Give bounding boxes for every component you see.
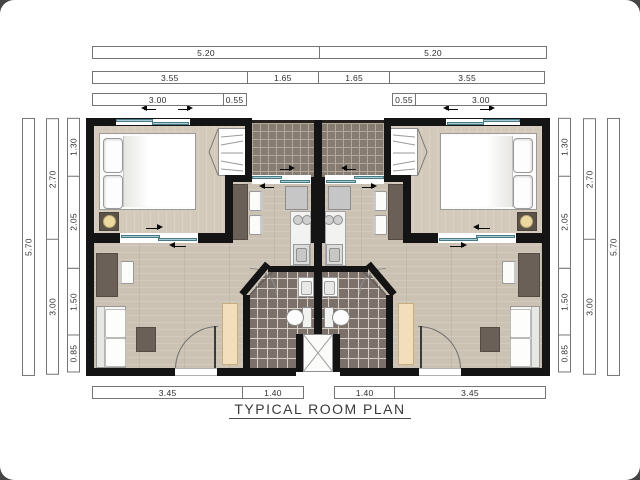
kitchen-counter	[325, 211, 346, 266]
window-pane	[476, 235, 515, 238]
slide-arrow-icon	[446, 109, 458, 110]
dim-segment: 3.00	[46, 239, 59, 375]
wall-bathroom-top	[318, 266, 368, 272]
desk	[518, 253, 540, 297]
wall-exterior-bottom	[86, 368, 175, 376]
dim-segment: 2.05	[67, 176, 80, 269]
bathroom-vanity	[298, 277, 314, 297]
dining-chair	[373, 215, 387, 235]
dim-segment: 3.00	[583, 239, 596, 375]
dim-segment: 3.00	[92, 93, 224, 106]
window-pane	[252, 176, 282, 179]
dining-chair	[249, 215, 263, 235]
dim-segment: 1.30	[67, 118, 80, 177]
dim-segment: 1.40	[242, 386, 303, 399]
bedroom-window	[446, 119, 520, 125]
window-pane	[447, 122, 484, 125]
refrigerator	[328, 186, 351, 210]
dim-segment: 3.45	[92, 386, 243, 399]
dim-row-mid-width: 3.551.651.653.55	[92, 71, 545, 84]
sink-basin	[296, 248, 307, 262]
entry-door-threshold	[419, 368, 461, 376]
kitchen-sink	[326, 244, 343, 265]
sofa	[96, 306, 126, 368]
dim-row-inner-width-right: 0.553.00	[392, 93, 547, 106]
stove-burner-icon	[324, 215, 334, 225]
slide-arrow-icon	[178, 109, 190, 110]
dim-row-inner-width-left: 3.000.55	[92, 93, 247, 106]
wardrobe	[208, 128, 246, 176]
dim-segment: 1.50	[558, 268, 571, 336]
slide-arrow-icon	[480, 109, 492, 110]
toilet-bowl	[332, 309, 350, 326]
dim-row-overall-width: 5.205.20	[92, 46, 547, 59]
dim-segment: 0.55	[223, 93, 247, 106]
wall-exterior-left	[86, 118, 94, 376]
dim-segment: 5.20	[319, 46, 547, 59]
shaft-wall	[333, 334, 340, 372]
pillow	[513, 175, 533, 209]
dim-col-right-mid: 2.703.00	[583, 118, 596, 375]
desk-chair	[119, 261, 134, 284]
dim-col-left-inner: 1.302.051.500.85	[67, 118, 80, 373]
balcony-railing	[252, 120, 318, 123]
dim-segment: 2.70	[46, 118, 59, 240]
entry-door-threshold	[175, 368, 217, 376]
dim-segment: 3.00	[415, 93, 547, 106]
wardrobe	[390, 128, 428, 176]
wall-party-kitchen	[311, 177, 325, 243]
desk-chair	[502, 261, 517, 284]
dining-chair	[249, 191, 263, 211]
wall-exterior-bottom	[340, 368, 419, 376]
kitchen-sink	[293, 244, 310, 265]
dim-segment: 3.45	[394, 386, 545, 399]
wall-stub	[225, 175, 233, 243]
desk	[96, 253, 118, 297]
coffee-table	[480, 327, 500, 352]
entry-door-leaf	[214, 326, 216, 368]
window-pane	[121, 235, 160, 238]
window-pane	[116, 119, 153, 122]
dim-segment: 3.55	[389, 71, 545, 84]
pillow	[103, 175, 123, 209]
duvet	[441, 136, 513, 207]
unit-right	[318, 118, 550, 376]
dim-segment: 1.50	[67, 268, 80, 336]
wall-bathroom-left	[386, 295, 393, 368]
slide-arrow-icon	[144, 109, 156, 110]
dim-segment: 5.70	[607, 118, 620, 376]
coffee-table	[136, 327, 156, 352]
dim-segment: 5.70	[22, 118, 35, 376]
dim-segment: 0.55	[392, 93, 416, 106]
slide-arrow-icon	[362, 187, 374, 188]
refrigerator	[285, 186, 308, 210]
bed	[440, 133, 537, 210]
entry-door-leaf	[420, 326, 422, 368]
dim-col-right-outer: 5.70	[607, 118, 620, 376]
slide-arrow-icon	[146, 228, 160, 229]
wall-party-top	[314, 120, 322, 177]
bedroom-sliding-partition	[120, 233, 198, 243]
kitchen-counter	[290, 211, 311, 266]
wall-exterior-bottom	[217, 368, 296, 376]
window-pane	[354, 176, 384, 179]
dim-segment: 1.65	[318, 71, 390, 84]
sofa-cushion	[105, 338, 126, 367]
sofa-cushion	[510, 338, 531, 367]
shoe-cabinet	[222, 303, 238, 365]
wall-bathroom-left	[243, 295, 250, 368]
dim-segment: 2.05	[558, 176, 571, 269]
dining-table	[388, 184, 404, 240]
pillow	[103, 138, 123, 173]
bedroom-window	[116, 119, 190, 125]
bedside-lamp-icon	[103, 215, 116, 228]
stove-burner-icon	[333, 215, 343, 225]
wall-stub	[403, 175, 411, 243]
bed	[99, 133, 196, 210]
window-pane	[280, 180, 310, 183]
wall-party-bathroom	[314, 243, 322, 334]
dining-table	[232, 184, 248, 240]
bathroom-vanity	[322, 277, 338, 297]
window-pane	[158, 238, 197, 241]
shoe-cabinet	[398, 303, 414, 365]
floor-plan-sheet: 5.205.20 3.551.651.653.55 3.000.55 0.553…	[0, 0, 640, 480]
page-title: TYPICAL ROOM PLAN	[229, 401, 410, 419]
dim-segment: 0.85	[558, 334, 571, 372]
floor-plan	[86, 118, 550, 376]
dim-row-bottom-right: 1.403.45	[334, 386, 546, 399]
window-pane	[152, 122, 189, 125]
slide-arrow-icon	[280, 169, 292, 170]
unit-left	[86, 118, 318, 376]
vanity-basin	[324, 281, 335, 295]
slide-arrow-icon	[344, 169, 356, 170]
dim-segment: 2.70	[583, 118, 596, 240]
drawing-title: TYPICAL ROOM PLAN	[0, 401, 640, 419]
dining-chair	[373, 191, 387, 211]
toilet-bowl	[286, 309, 304, 326]
dim-col-left-mid: 2.703.00	[46, 118, 59, 375]
sofa	[510, 306, 540, 368]
service-shaft	[303, 334, 333, 372]
window-pane	[326, 180, 356, 183]
sofa-back	[531, 307, 539, 367]
wall-exterior-left	[542, 118, 550, 376]
wall-balcony	[384, 118, 391, 182]
window-pane	[439, 238, 478, 241]
slide-arrow-icon	[172, 246, 186, 247]
pillow	[513, 138, 533, 173]
slide-arrow-icon	[450, 246, 464, 247]
window-pane	[483, 119, 520, 122]
vanity-basin	[301, 281, 312, 295]
sink-basin	[329, 248, 340, 262]
sofa-back	[97, 307, 105, 367]
shaft-wall	[296, 334, 303, 372]
dim-col-left-outer: 5.70	[22, 118, 35, 376]
dim-segment: 3.55	[92, 71, 248, 84]
dim-segment: 1.30	[558, 118, 571, 177]
wall-exterior-bottom	[461, 368, 550, 376]
dim-segment: 5.20	[92, 46, 320, 59]
dim-segment: 1.40	[334, 386, 395, 399]
wall-balcony	[245, 118, 252, 182]
sofa-cushion	[510, 309, 531, 338]
wall-bathroom-top	[268, 266, 318, 272]
slide-arrow-icon	[262, 187, 274, 188]
slide-arrow-icon	[476, 228, 490, 229]
dim-segment: 1.65	[247, 71, 319, 84]
bedside-lamp-icon	[520, 215, 533, 228]
sofa-cushion	[105, 309, 126, 338]
bedroom-sliding-partition	[438, 233, 516, 243]
dim-col-right-inner: 1.302.051.500.85	[558, 118, 571, 373]
dim-row-bottom-left: 3.451.40	[92, 386, 304, 399]
duvet	[123, 136, 195, 207]
dim-segment: 0.85	[67, 334, 80, 372]
balcony-railing	[318, 120, 384, 123]
